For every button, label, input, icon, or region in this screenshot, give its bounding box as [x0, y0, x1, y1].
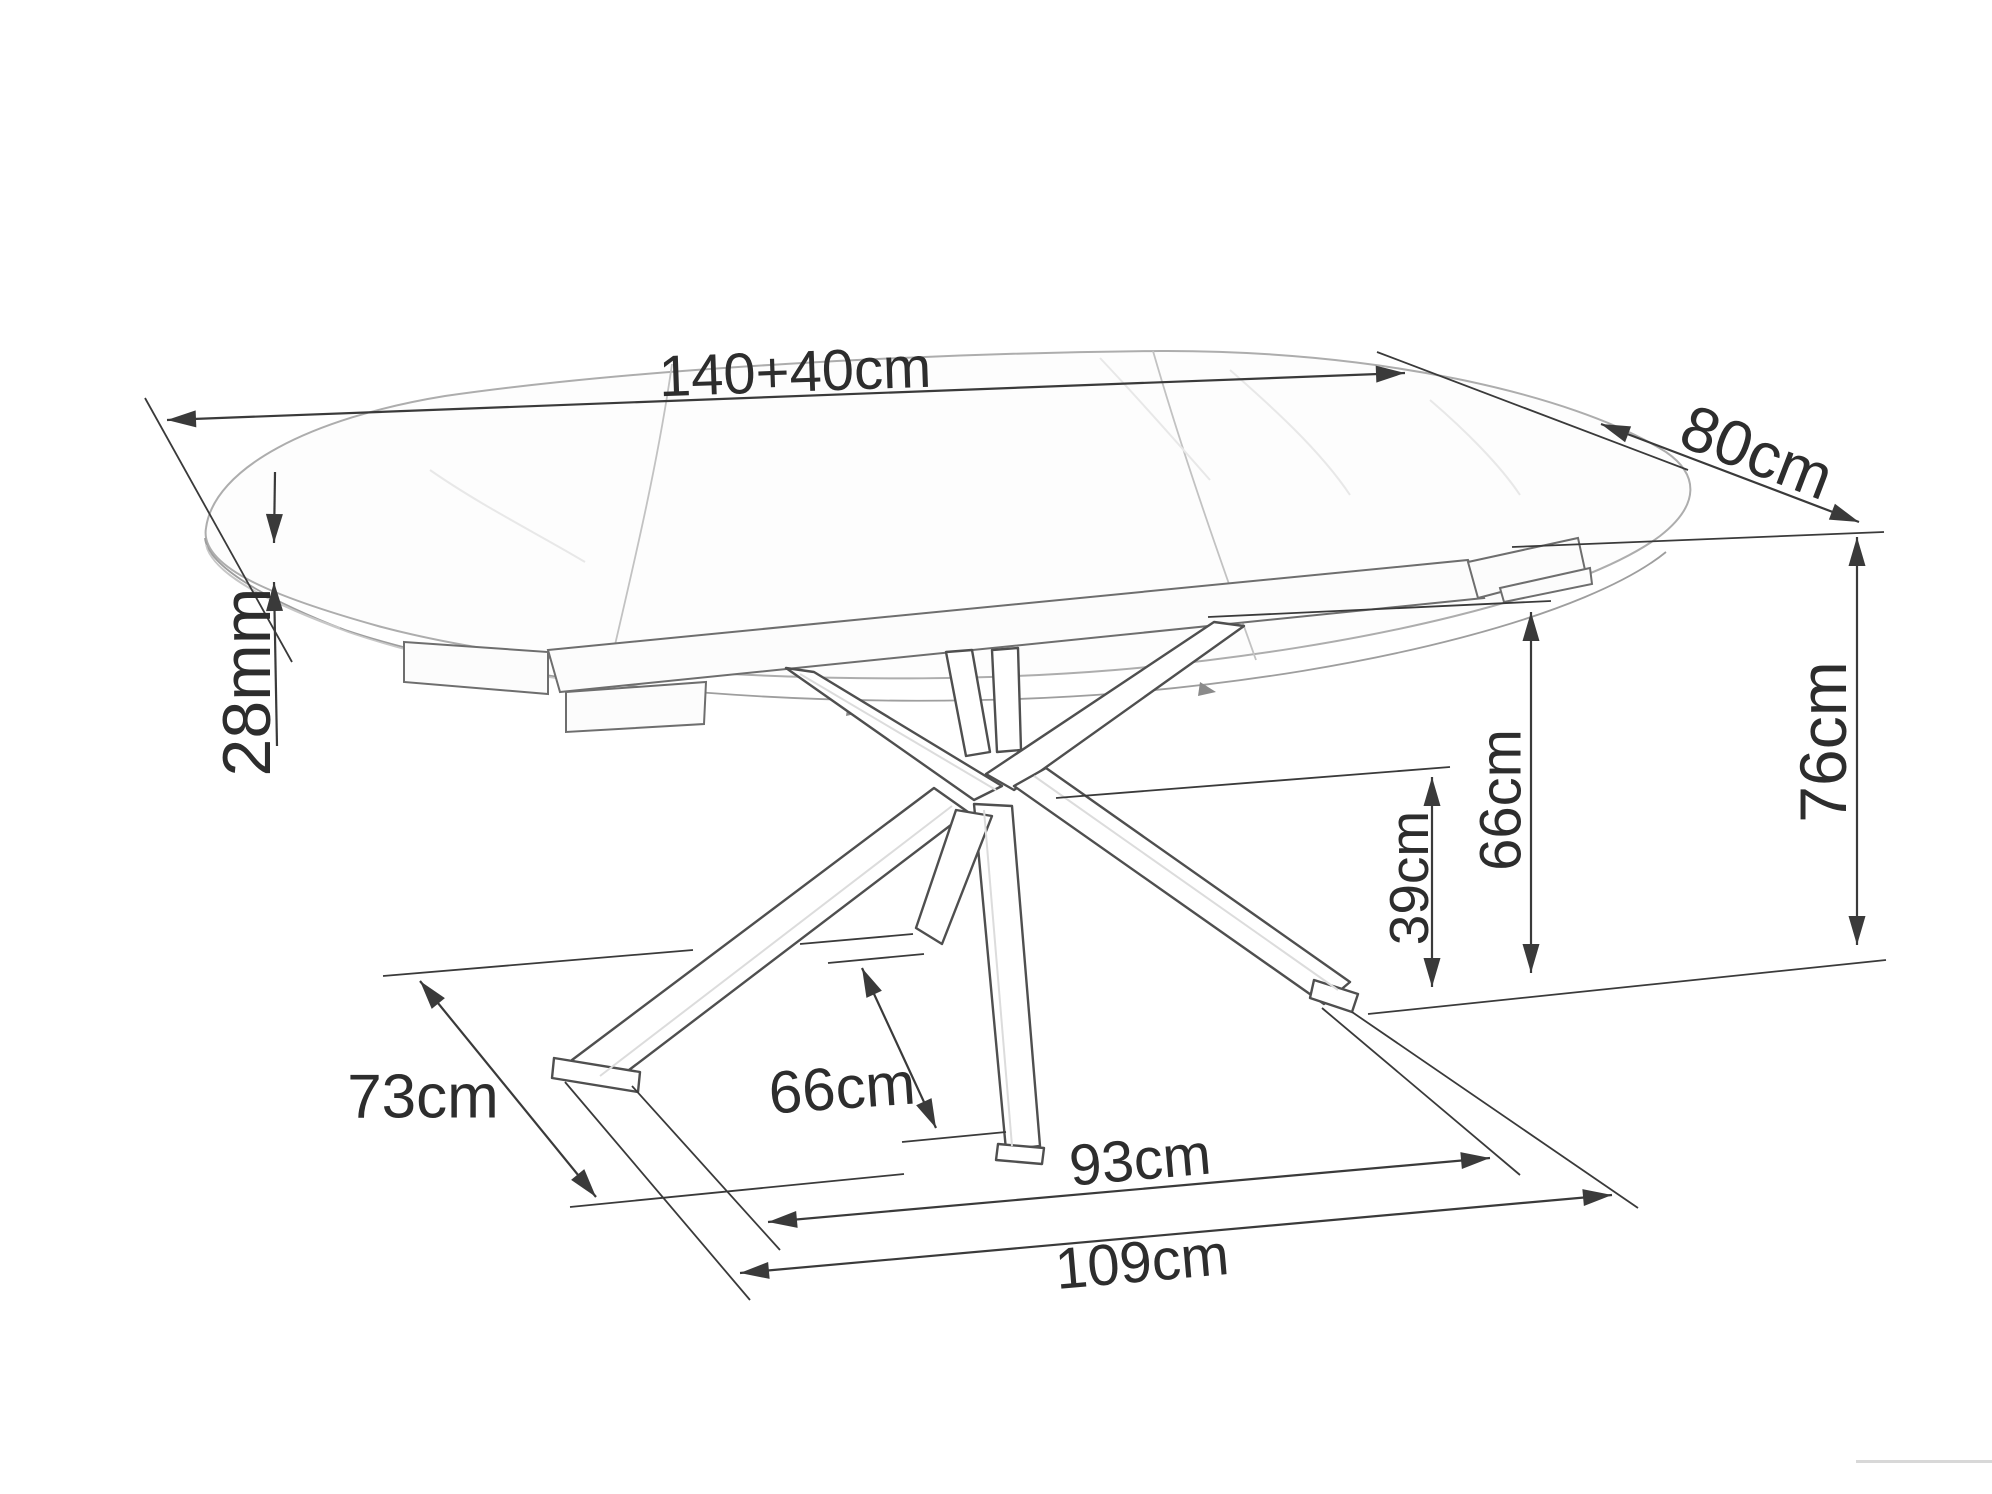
leg-left [572, 788, 968, 1086]
dimension-label-base-center-height: 39cm [1378, 811, 1440, 946]
dimension-label-apron-clearance: 66cm [1469, 729, 1534, 871]
dimension-label-length: 140+40cm [658, 335, 933, 409]
extension-line [1322, 1008, 1520, 1175]
dimension-arrow-line [274, 472, 275, 543]
ground-reference-line [1368, 960, 1886, 1014]
dimension-label-leg-strut-span: 66cm [766, 1049, 917, 1126]
drawing-canvas: 140+40cm 80cm 28mm 76cm 66cm 39cm 66cm [0, 0, 1992, 1494]
center-post-right [992, 648, 1021, 752]
slide-rail-left [404, 642, 548, 694]
extension-line [828, 954, 924, 963]
extension-line [632, 1086, 780, 1250]
extension-line [1056, 767, 1450, 798]
dimension-label-base-span-outer: 109cm [1052, 1222, 1231, 1302]
extension-line [1352, 1012, 1638, 1208]
page-edge-artifact [1856, 1460, 1992, 1463]
dimension-base-span-inner: 93cm [632, 1008, 1520, 1250]
dimension-label-base-depth: 73cm [347, 1063, 499, 1132]
table-dimension-drawing: 140+40cm 80cm 28mm 76cm 66cm 39cm 66cm [0, 0, 1992, 1494]
extension-line [800, 934, 913, 944]
extension-line [383, 950, 693, 976]
foot-front [996, 1144, 1044, 1164]
dimension-label-thickness: 28mm [209, 588, 285, 777]
leg-front [974, 804, 1040, 1150]
dimension-label-width: 80cm [1671, 390, 1843, 513]
slide-rail-left-lower [566, 682, 706, 732]
extension-line [902, 1132, 1006, 1142]
leg-shading [600, 806, 952, 1076]
leg-shading [1034, 776, 1338, 990]
leg-right [1014, 768, 1350, 1004]
dimension-leg-strut-span: 66cm [766, 934, 1006, 1142]
dimension-label-base-span-inner: 93cm [1067, 1121, 1214, 1198]
dimension-label-height: 76cm [1786, 661, 1860, 822]
